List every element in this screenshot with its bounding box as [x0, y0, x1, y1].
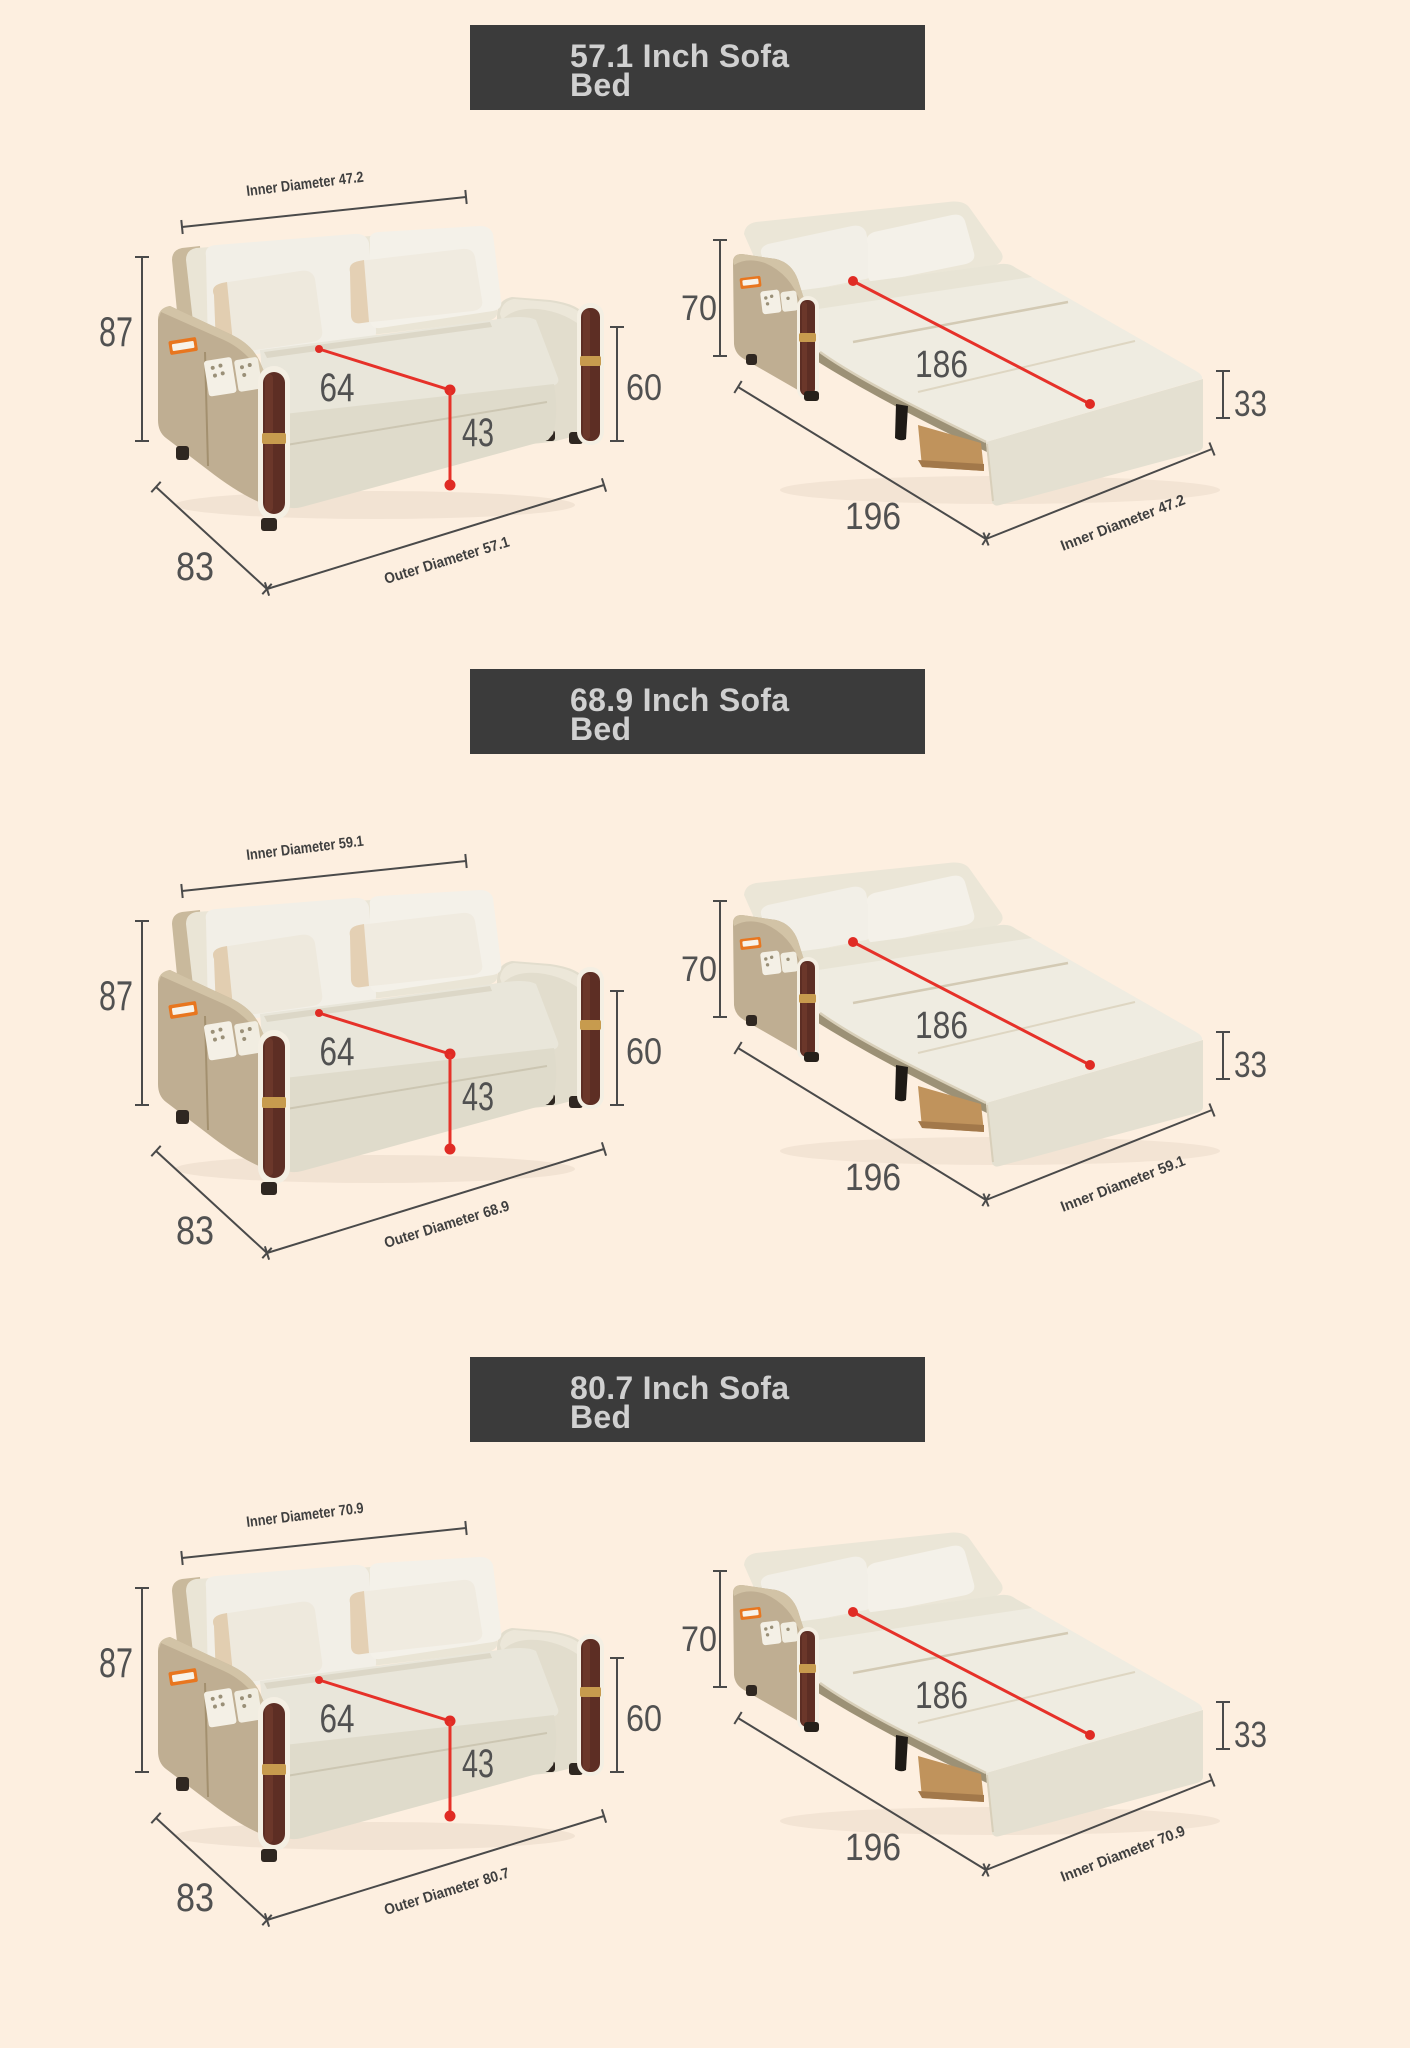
svg-text:70: 70 — [681, 289, 717, 328]
svg-text:186: 186 — [915, 1675, 968, 1717]
svg-text:43: 43 — [462, 1075, 494, 1119]
svg-text:33: 33 — [1234, 1714, 1267, 1755]
svg-text:60: 60 — [626, 1031, 662, 1072]
svg-text:64: 64 — [320, 366, 355, 410]
svg-text:87: 87 — [99, 308, 133, 355]
svg-text:Bed: Bed — [570, 67, 631, 103]
svg-text:60: 60 — [626, 367, 662, 408]
svg-text:Outer Diameter 80.7: Outer Diameter 80.7 — [382, 1865, 511, 1919]
svg-text:43: 43 — [462, 411, 494, 455]
svg-text:60: 60 — [626, 1698, 662, 1739]
svg-text:64: 64 — [320, 1697, 355, 1741]
svg-text:33: 33 — [1234, 1044, 1267, 1085]
svg-text:64: 64 — [320, 1030, 355, 1074]
svg-text:196: 196 — [845, 1827, 901, 1869]
svg-text:186: 186 — [915, 344, 968, 386]
svg-text:87: 87 — [99, 1639, 133, 1686]
svg-text:Bed: Bed — [570, 711, 631, 747]
svg-text:196: 196 — [845, 1157, 901, 1199]
svg-text:83: 83 — [176, 545, 214, 589]
svg-text:Outer Diameter 68.9: Outer Diameter 68.9 — [382, 1198, 511, 1252]
svg-text:186: 186 — [915, 1005, 968, 1047]
svg-text:Outer Diameter 57.1: Outer Diameter 57.1 — [382, 534, 511, 588]
svg-text:Inner Diameter 70.9: Inner Diameter 70.9 — [245, 1500, 364, 1531]
svg-text:Inner Diameter 47.2: Inner Diameter 47.2 — [245, 169, 364, 200]
svg-text:Inner Diameter 59.1: Inner Diameter 59.1 — [245, 833, 364, 864]
svg-text:87: 87 — [99, 972, 133, 1019]
svg-text:Bed: Bed — [570, 1399, 631, 1435]
svg-text:83: 83 — [176, 1876, 214, 1920]
svg-text:83: 83 — [176, 1209, 214, 1253]
svg-text:196: 196 — [845, 496, 901, 538]
svg-text:33: 33 — [1234, 383, 1267, 424]
svg-text:43: 43 — [462, 1742, 494, 1786]
svg-text:70: 70 — [681, 1620, 717, 1659]
svg-text:70: 70 — [681, 950, 717, 989]
